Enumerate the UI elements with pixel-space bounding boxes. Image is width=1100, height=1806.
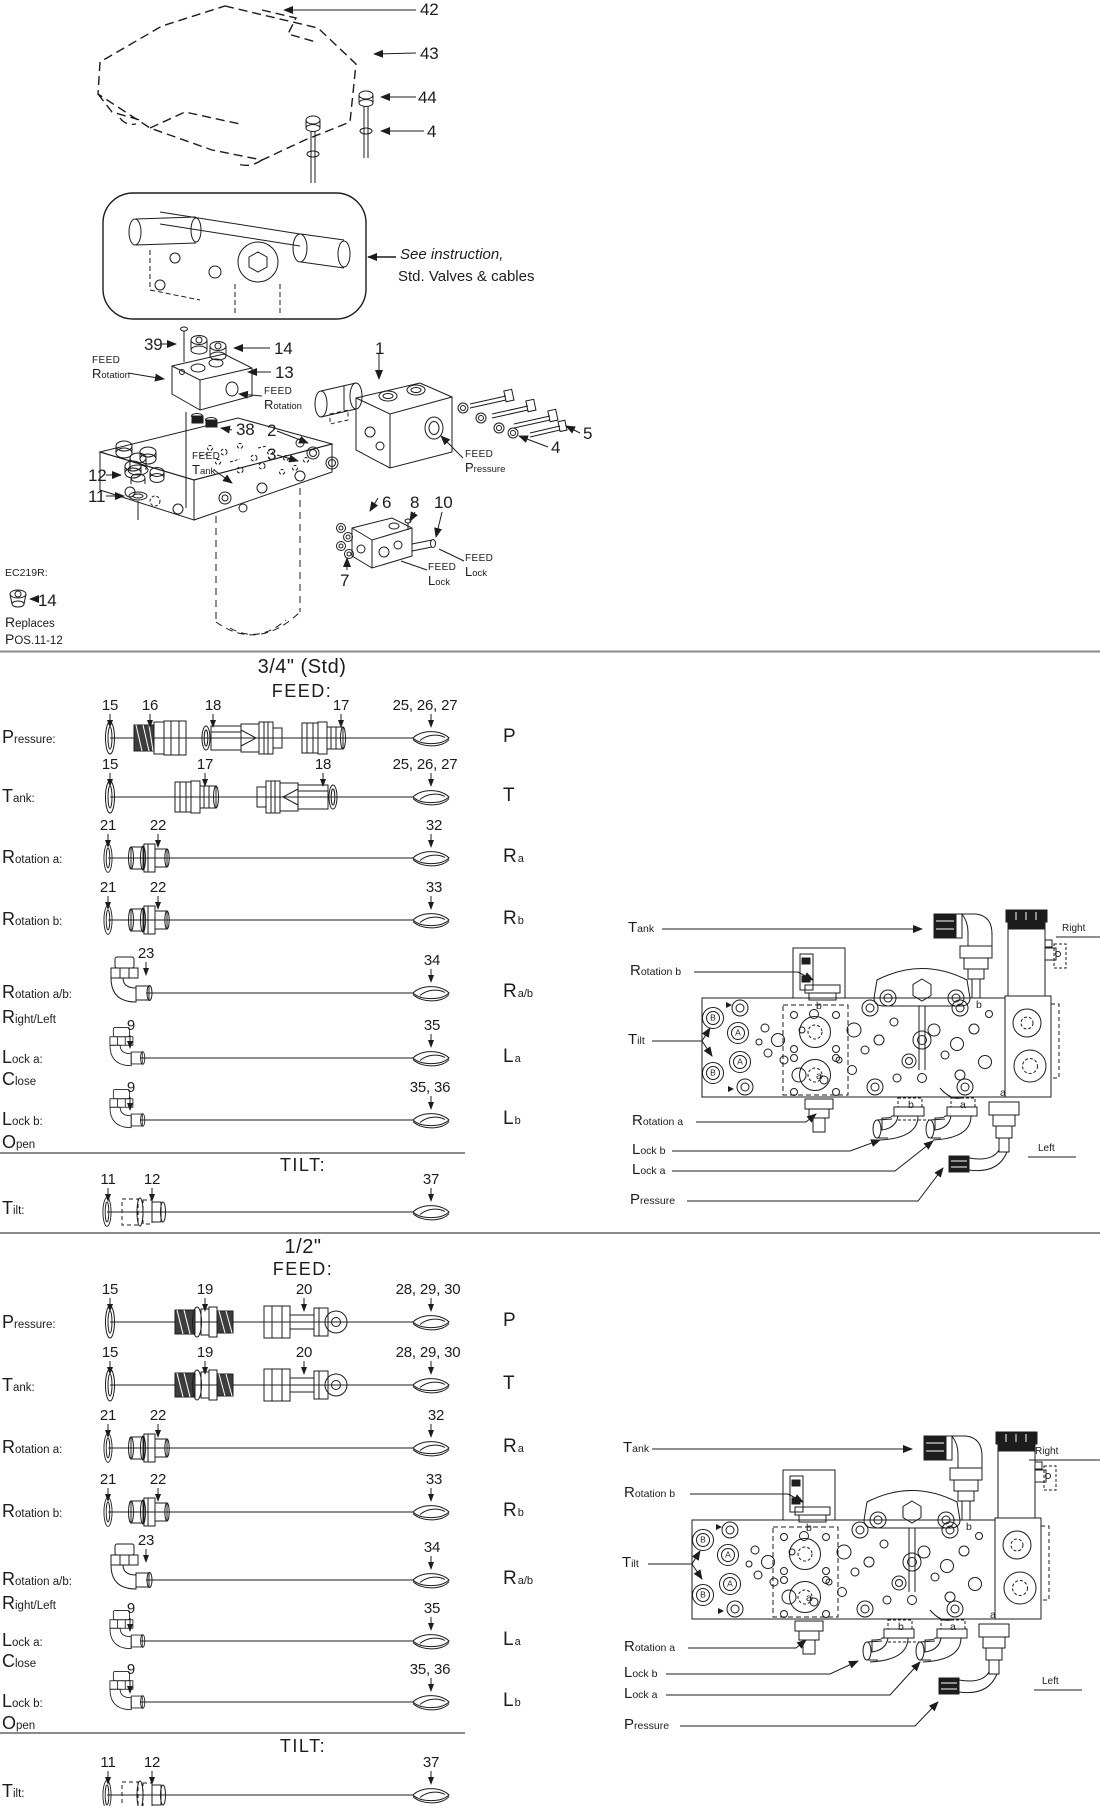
diagram12-port-b-bottom: b: [898, 1622, 904, 1633]
callout-number: 9: [127, 1662, 135, 1678]
callout-3: 3: [267, 446, 276, 464]
diagram34-right-label: Right: [1062, 924, 1085, 935]
feed-lock-right-port: Lock: [465, 565, 487, 579]
callout-number: 35, 36: [410, 1662, 451, 1678]
ec-part-icon: [10, 590, 26, 607]
callout-2: 2: [267, 422, 276, 440]
feed-tank-title: FEED: [192, 452, 220, 463]
port-letter-la-12: La: [503, 1630, 521, 1650]
feed-pressure-title: FEED: [465, 450, 493, 461]
row-label-rotation-ab-34: Rotation a/b:: [2, 983, 72, 1002]
feed-tank-port: Tank: [192, 463, 215, 477]
callout-number: 37: [423, 1755, 439, 1771]
size-header-12: 1/2": [285, 1237, 322, 1258]
diagram12-valve-a2: A: [727, 1580, 733, 1589]
callout-number: 15: [102, 1282, 118, 1298]
feed-lock-left-title: FEED: [428, 563, 456, 574]
callout-number: 21: [100, 818, 116, 834]
diagram34-lock-a-label: Lock a: [632, 1162, 665, 1178]
callout-39: 39: [144, 336, 163, 354]
port-letter-p-34: P: [503, 727, 517, 747]
port-letter-rab-12: Ra/b: [503, 1569, 533, 1589]
callout-number: 23: [138, 1533, 154, 1549]
diagram34-rotation-a-label: Rotation a: [632, 1113, 683, 1129]
callout-12: 12: [88, 467, 107, 485]
port-letter-lb-12: Lb: [503, 1691, 521, 1711]
callout-number: 32: [428, 1408, 444, 1424]
diagram12-valve-b1: B: [700, 1536, 706, 1545]
callout-number: 16: [142, 698, 158, 714]
callout-number: 23: [138, 946, 154, 962]
ec-num: 14: [38, 592, 57, 610]
diagram34-port-b-bottom: b: [908, 1100, 914, 1111]
callout-number: 35: [424, 1601, 440, 1617]
cover-screws: [306, 91, 373, 183]
row-label-lock-b-12: Lock b:: [2, 1692, 43, 1711]
callout-14: 14: [274, 340, 293, 358]
port-letter-rb-12: Rb: [503, 1501, 524, 1521]
diagram12-port-b-right: b: [966, 1522, 972, 1533]
callout-38: 38: [236, 421, 255, 439]
line-art: [0, 0, 1100, 1806]
diagram34-left-label: Left: [1038, 1144, 1055, 1155]
callout-number: 28, 29, 30: [396, 1282, 461, 1298]
callout-13: 13: [275, 364, 294, 382]
callout-number: 18: [205, 698, 221, 714]
diagram12-lock-b-label: Lock b: [624, 1665, 657, 1681]
valve-diagram-34: [652, 910, 1100, 1201]
diagram34-port-b-right: b: [976, 1000, 982, 1011]
ec-pos: POS.11-12: [5, 632, 63, 647]
instruction-box-drawing: [103, 193, 366, 319]
diagram12-tank-label: Tank: [623, 1440, 649, 1456]
port-letter-rab-34: Ra/b: [503, 982, 533, 1002]
callout-number: 12: [144, 1755, 160, 1771]
callout-number: 11: [100, 1755, 115, 1771]
rows-art-34: [103, 714, 449, 1226]
callout-number: 22: [150, 1472, 166, 1488]
row-label-tilt-34: Tilt:: [2, 1199, 25, 1218]
callout-7: 7: [340, 572, 349, 590]
callout-number: 17: [197, 757, 213, 773]
instruction-note-line1: See instruction,: [400, 247, 503, 263]
diagram12-pressure-label: Pressure: [624, 1717, 669, 1733]
callout-44: 44: [418, 89, 437, 107]
callout-number: 15: [102, 1345, 118, 1361]
instruction-note-line2: Std. Valves & cables: [398, 269, 534, 285]
diagram34-rotation-b-label: Rotation b: [630, 963, 681, 979]
feed-rotation-right-port: Rotation: [264, 398, 302, 412]
diagram12-lock-a-label: Lock a: [624, 1686, 657, 1702]
row-label-lock-a-12: Lock a:: [2, 1631, 43, 1650]
feed-header-34: FEED:: [272, 682, 333, 701]
size-header-34: 3/4" (Std): [258, 657, 347, 678]
row-sublabel-rightleft-34: Right/Left: [2, 1008, 56, 1027]
callout-number: 21: [100, 880, 116, 896]
diagram34-valve-b1: B: [710, 1014, 716, 1023]
feed-pressure-port: Pressure: [465, 461, 505, 475]
diagram34-port-a-block: a: [816, 1071, 822, 1082]
row-sublabel-close-12: Close: [2, 1652, 36, 1671]
parts-catalog-page: 42 43 44 4 See instruction, Std. Valves …: [0, 0, 1100, 1806]
port-letter-ra-34: Ra: [503, 847, 524, 867]
callout-number: 21: [100, 1472, 116, 1488]
callout-number: 34: [424, 1540, 440, 1556]
diagram34-lock-b-label: Lock b: [632, 1142, 665, 1158]
callout-number: 22: [150, 1408, 166, 1424]
callout-8: 8: [410, 494, 419, 512]
callout-number: 32: [426, 818, 442, 834]
diagram12-port-b-block: b: [806, 1523, 812, 1534]
feed-rotation-left-title: FEED: [92, 356, 120, 367]
callout-number: 22: [150, 880, 166, 896]
diagram34-tank-label: Tank: [628, 920, 654, 936]
callout-number: 15: [102, 698, 118, 714]
callout-number: 9: [127, 1080, 135, 1096]
callout-6: 6: [382, 494, 391, 512]
feed-lock-left-port: Lock: [428, 574, 450, 588]
diagram12-rotation-b-label: Rotation b: [624, 1485, 675, 1501]
callout-number: 35, 36: [410, 1080, 451, 1096]
feed-header-12: FEED:: [273, 1260, 334, 1279]
diagram12-port-a-block: a: [806, 1593, 812, 1604]
row-label-tank-12: Tank:: [2, 1376, 35, 1395]
row-sublabel-open-34: Open: [2, 1133, 35, 1152]
rows-art-12: [103, 1298, 449, 1806]
callout-11: 11: [88, 488, 105, 506]
row-label-lock-a-34: Lock a:: [2, 1048, 43, 1067]
diagram12-tilt-label: Tilt: [622, 1555, 639, 1571]
callout-number: 15: [102, 757, 118, 773]
callout-number: 21: [100, 1408, 116, 1424]
callout-number: 33: [426, 1472, 442, 1488]
row-label-rotation-a-34: Rotation a:: [2, 848, 62, 867]
callout-number: 20: [296, 1345, 312, 1361]
callout-number: 28, 29, 30: [396, 1345, 461, 1361]
callout-number: 11: [100, 1172, 115, 1188]
diagram12-port-a-fitting: a: [990, 1610, 996, 1621]
row-label-rotation-b-34: Rotation b:: [2, 910, 62, 929]
diagram34-port-b-block: b: [816, 1001, 822, 1012]
callout-number: 18: [315, 757, 331, 773]
port-letter-t-34: T: [503, 786, 516, 806]
callout-number: 17: [333, 698, 349, 714]
row-label-tilt-12: Tilt:: [2, 1782, 25, 1801]
feed-rotation-left-port: Rotation: [92, 367, 130, 381]
diagram34-valve-a2: A: [737, 1058, 743, 1067]
callout-42: 42: [420, 1, 439, 19]
diagram34-pressure-label: Pressure: [630, 1192, 675, 1208]
callout-number: 37: [423, 1172, 439, 1188]
callout-1: 1: [375, 340, 384, 358]
diagram12-valve-a1: A: [725, 1551, 731, 1560]
row-label-lock-b-34: Lock b:: [2, 1110, 43, 1129]
callout-4: 4: [551, 439, 560, 457]
callout-number: 9: [127, 1018, 135, 1034]
callout-4-cover: 4: [427, 123, 436, 141]
callout-10: 10: [434, 494, 453, 512]
diagram34-tilt-label: Tilt: [628, 1032, 645, 1048]
callout-number: 25, 26, 27: [393, 698, 458, 714]
port-letter-rb-34: Rb: [503, 909, 524, 929]
exploded-drawing: [100, 327, 567, 635]
port-letter-t-12: T: [503, 1374, 516, 1394]
callout-number: 33: [426, 880, 442, 896]
diagram12-port-a-bottom: a: [950, 1622, 956, 1633]
row-sublabel-close-34: Close: [2, 1070, 36, 1089]
diagram12-rotation-a-label: Rotation a: [624, 1639, 675, 1655]
callout-43: 43: [420, 45, 439, 63]
row-sublabel-rightleft-12: Right/Left: [2, 1594, 56, 1613]
callout-number: 20: [296, 1282, 312, 1298]
feed-rotation-right-title: FEED: [264, 387, 292, 398]
callout-number: 12: [144, 1172, 160, 1188]
diagram34-valve-b2: B: [710, 1069, 716, 1078]
row-label-pressure-34: Pressure:: [2, 728, 56, 747]
diagram34-port-a-fitting: a: [1000, 1088, 1006, 1099]
diagram12-left-label: Left: [1042, 1677, 1059, 1688]
diagram12-valve-b2: B: [700, 1591, 706, 1600]
callout-number: 35: [424, 1018, 440, 1034]
row-label-tank-34: Tank:: [2, 787, 35, 806]
ec-replaces: Replaces: [5, 615, 55, 630]
callout-number: 25, 26, 27: [393, 757, 458, 773]
port-letter-lb-34: Lb: [503, 1109, 521, 1129]
cover-drawing: [98, 6, 356, 165]
callout-number: 22: [150, 818, 166, 834]
port-letter-la-34: La: [503, 1047, 521, 1067]
callout-number: 9: [127, 1601, 135, 1617]
row-label-rotation-b-12: Rotation b:: [2, 1502, 62, 1521]
row-label-rotation-a-12: Rotation a:: [2, 1438, 62, 1457]
port-letter-ra-12: Ra: [503, 1437, 524, 1457]
tilt-header-12: TILT:: [280, 1737, 326, 1756]
diagram12-right-label: Right: [1035, 1447, 1058, 1458]
port-letter-p-12: P: [503, 1311, 517, 1331]
row-label-rotation-ab-12: Rotation a/b:: [2, 1570, 72, 1589]
callout-number: 19: [197, 1282, 213, 1298]
diagram34-valve-a1: A: [735, 1029, 741, 1038]
tilt-header-34: TILT:: [280, 1156, 326, 1175]
diagram34-port-a-bottom: a: [960, 1100, 966, 1111]
ec-code: EC219R:: [5, 568, 48, 579]
callout-number: 19: [197, 1345, 213, 1361]
callout-number: 34: [424, 953, 440, 969]
callout-5: 5: [583, 425, 592, 443]
valve-diagram-12: [648, 1432, 1100, 1726]
feed-lock-right-title: FEED: [465, 554, 493, 565]
row-label-pressure-12: Pressure:: [2, 1313, 56, 1332]
row-sublabel-open-12: Open: [2, 1714, 35, 1733]
